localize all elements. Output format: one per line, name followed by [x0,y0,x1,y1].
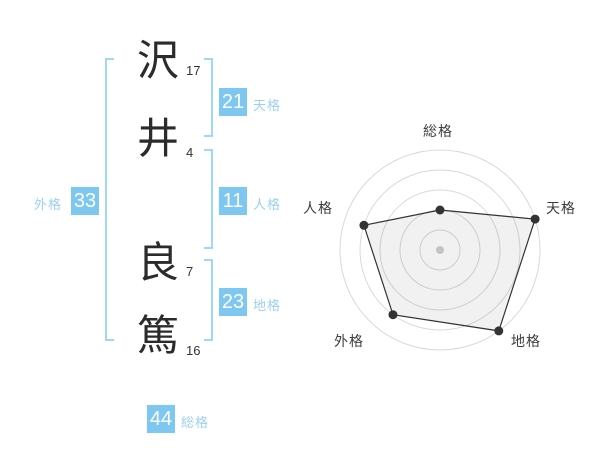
radar-axis-label-jinkaku: 人格 [303,198,333,218]
radar-axis-label-chikaku: 地格 [511,331,541,351]
radar-axis-label-soukaku: 総格 [423,121,453,141]
radar-axis-label-tenkaku: 天格 [546,198,576,218]
radar-axis-label-gaikaku: 外格 [334,331,364,351]
radar-chart [0,0,600,470]
name-fortune-figure: 沢 井 良 篤 17 4 7 16 21 天格 11 人格 23 地格 外格 3… [0,0,600,470]
